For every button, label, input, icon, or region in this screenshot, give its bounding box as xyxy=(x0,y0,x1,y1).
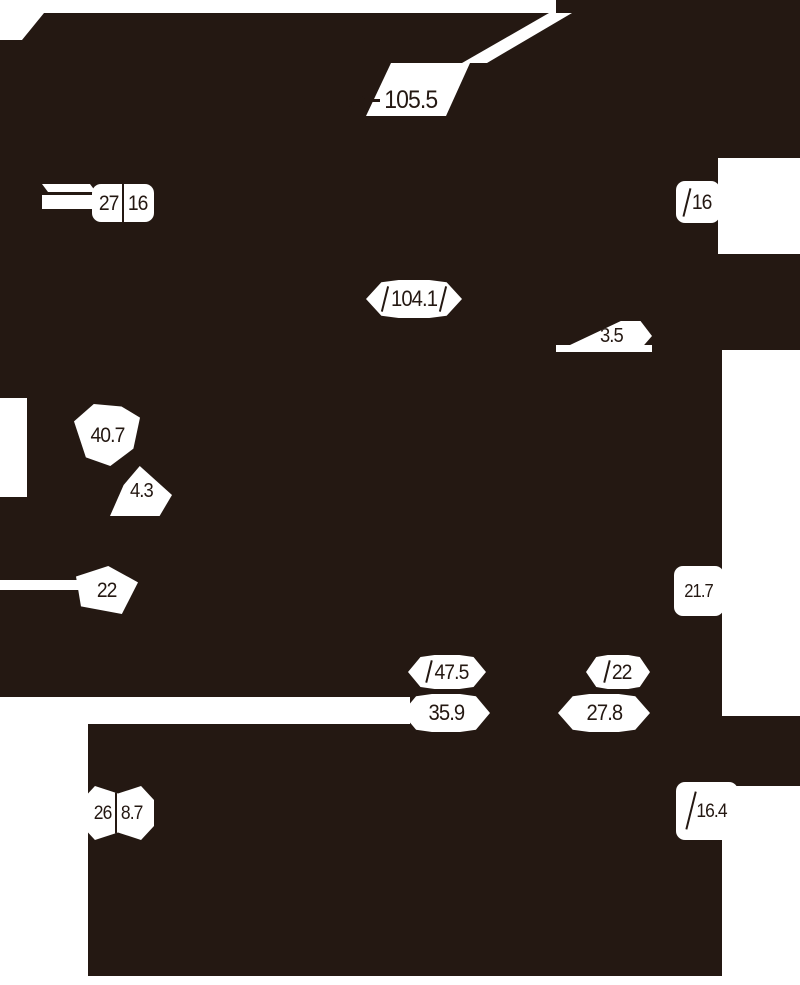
extension-tick-icon xyxy=(368,99,380,102)
dimension-callout-21-7: 21.7 xyxy=(674,566,724,616)
white-wedge-top xyxy=(462,13,572,63)
white-margin-right-mid xyxy=(722,350,800,716)
dimension-value: 16 xyxy=(692,192,712,213)
dimension-value: 8.7 xyxy=(121,804,143,823)
dimension-callout-27-8: 27.8 xyxy=(558,694,650,732)
leader-line-22 xyxy=(0,580,80,590)
extension-tick-icon xyxy=(425,661,433,684)
dimension-value: 27 xyxy=(98,193,118,214)
dimension-callout-105-5: 105.5 xyxy=(362,86,446,114)
dimension-callout-22-lower: 22 xyxy=(586,655,650,689)
dimension-value: 104.1 xyxy=(391,288,437,310)
dimension-value: 105.5 xyxy=(385,88,438,113)
dimension-value: 21.7 xyxy=(685,582,714,600)
dimension-callout-16-4: 16.4 xyxy=(676,782,738,840)
extension-tick-icon xyxy=(381,286,389,312)
dimension-value: 16 xyxy=(128,193,148,214)
white-margin-bottom xyxy=(0,976,800,985)
white-margin-bottom-left xyxy=(0,697,88,985)
dimension-value: 4.3 xyxy=(130,481,153,501)
dimension-callout-16-right: 16 xyxy=(676,181,720,223)
dimension-callout-35-9: 35.9 xyxy=(402,694,490,732)
extension-tick-icon xyxy=(604,661,612,684)
dimension-callout-27-16: 27 16 xyxy=(92,184,154,222)
white-margin-left xyxy=(0,398,27,497)
dimension-value: 35.9 xyxy=(428,702,464,724)
extension-tick-icon xyxy=(439,286,447,312)
dimension-value: 22 xyxy=(612,662,632,683)
extension-tick-icon xyxy=(683,188,692,216)
white-margin-top xyxy=(0,0,556,13)
part-slab-front xyxy=(42,195,96,209)
dimension-callout-47-5: 47.5 xyxy=(408,655,486,689)
extension-tick-icon xyxy=(685,792,696,831)
dimension-value: 16.4 xyxy=(696,802,726,821)
dimension-callout-104-1: 104.1 xyxy=(366,280,462,318)
dimension-value: 27.8 xyxy=(586,702,622,724)
extension-line-icon xyxy=(122,182,124,224)
dimension-value: 40.7 xyxy=(90,425,124,446)
white-margin-right-upper xyxy=(718,158,800,254)
dimension-value: 47.5 xyxy=(434,662,468,683)
white-corner-top-left xyxy=(0,0,44,40)
part-slab-top xyxy=(42,184,96,192)
dimension-value: 26 xyxy=(93,804,111,823)
dimension-value: 22 xyxy=(97,580,117,601)
dimension-callout-26-8-7: 26 8.7 xyxy=(82,786,154,840)
technical-drawing-canvas: 105.5 27 16 16 104.1 3.5 40.7 4.3 22 21.… xyxy=(0,0,800,985)
white-band-bottom xyxy=(80,697,410,724)
